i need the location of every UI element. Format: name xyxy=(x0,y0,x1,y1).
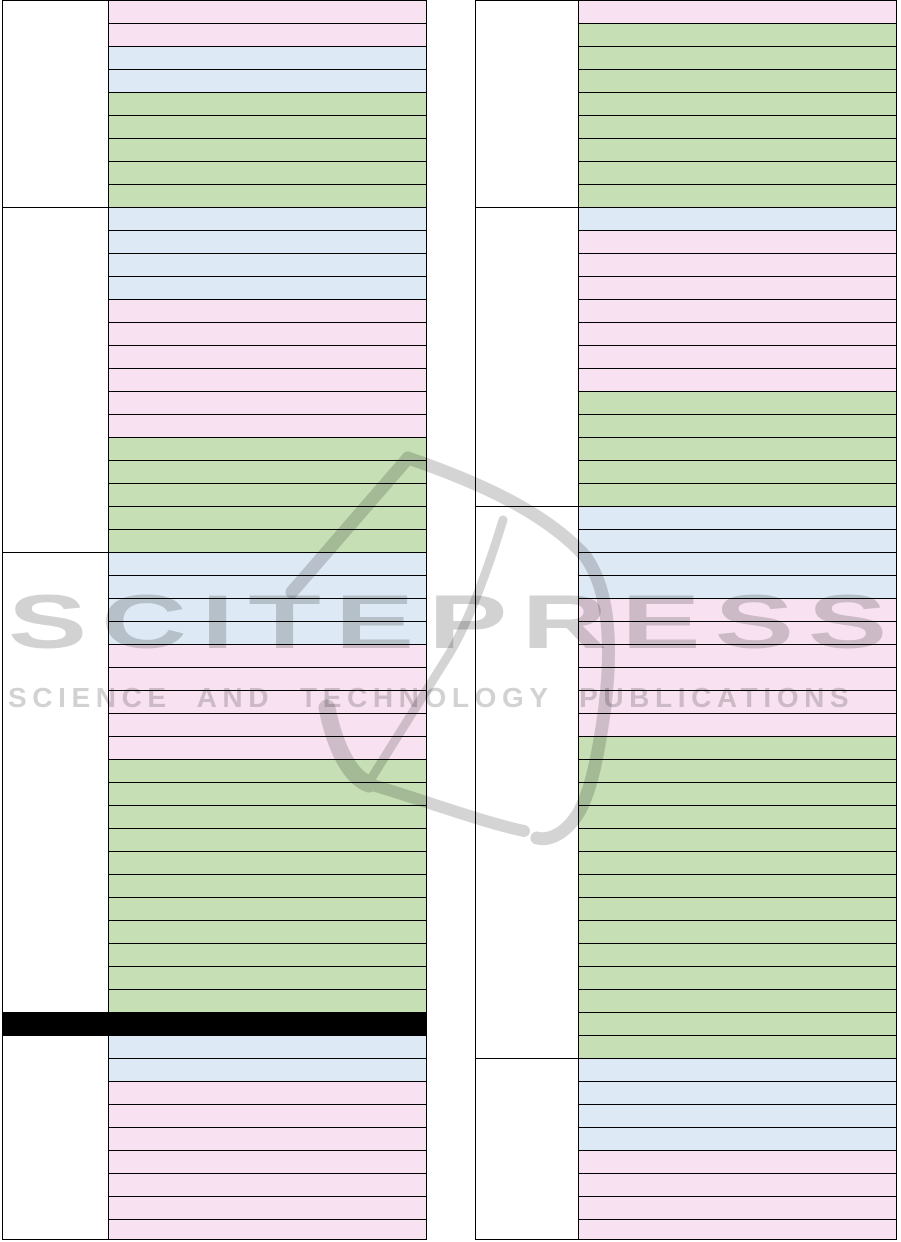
table-row-green xyxy=(579,162,896,185)
group-label-cell xyxy=(3,553,109,1013)
table-row-green xyxy=(579,760,896,783)
table-row-blue xyxy=(109,622,426,645)
table-row-pink xyxy=(579,691,896,714)
table-row-green xyxy=(109,875,426,898)
table-row-green xyxy=(579,484,896,507)
table-row-pink xyxy=(579,1220,896,1240)
group-rows xyxy=(579,1,896,208)
table-row-blue xyxy=(579,208,896,231)
table-row-pink xyxy=(109,737,426,760)
table-row-pink xyxy=(109,346,426,369)
table-row-pink xyxy=(579,599,896,622)
table-row-green xyxy=(109,967,426,990)
table-row-blue xyxy=(109,70,426,93)
table-row-pink xyxy=(109,415,426,438)
table-row-green xyxy=(579,1013,896,1036)
redaction-bar xyxy=(2,1013,427,1036)
table-row-green xyxy=(579,415,896,438)
table-row-green xyxy=(109,829,426,852)
table-row-blue xyxy=(109,599,426,622)
group-rows xyxy=(579,507,896,1059)
table-row-pink xyxy=(579,645,896,668)
row-group xyxy=(476,1,896,208)
table-row-green xyxy=(109,93,426,116)
group-rows xyxy=(109,208,426,553)
table-row-pink xyxy=(579,231,896,254)
table-row-pink xyxy=(579,369,896,392)
table-row-green xyxy=(109,806,426,829)
table-row-pink xyxy=(109,1151,426,1174)
row-group xyxy=(476,507,896,1059)
table-row-blue xyxy=(579,576,896,599)
table-row-green xyxy=(109,921,426,944)
table-row-blue xyxy=(109,1059,426,1082)
row-group xyxy=(3,1,426,208)
table-row-green xyxy=(109,116,426,139)
group-label-cell xyxy=(476,1,579,208)
table-row-blue xyxy=(109,576,426,599)
group-rows xyxy=(579,1059,896,1240)
table-row-blue xyxy=(579,1105,896,1128)
table-row-blue xyxy=(109,553,426,576)
row-group xyxy=(3,208,426,553)
table-row-pink xyxy=(109,668,426,691)
table-row-pink xyxy=(579,1,896,24)
table-row-green xyxy=(579,829,896,852)
group-label-cell xyxy=(3,1,109,208)
table-row-green xyxy=(109,484,426,507)
table-row-pink xyxy=(109,369,426,392)
table-row-pink xyxy=(109,691,426,714)
document-page: SCITEPRESS SCIENCE AND TECHNOLOGY PUBLIC… xyxy=(0,0,901,1242)
table-row-green xyxy=(579,47,896,70)
table-row-green xyxy=(579,852,896,875)
group-label-cell xyxy=(3,1036,109,1240)
group-rows xyxy=(579,208,896,507)
table-row-green xyxy=(579,783,896,806)
table-row-blue xyxy=(579,507,896,530)
table-row-green xyxy=(579,990,896,1013)
table-row-green xyxy=(579,438,896,461)
table-row-green xyxy=(579,806,896,829)
table-row-green xyxy=(109,507,426,530)
table-row-blue xyxy=(579,530,896,553)
group-label-cell xyxy=(476,208,579,507)
table-row-pink xyxy=(109,1174,426,1197)
table-row-blue xyxy=(579,553,896,576)
table-row-pink xyxy=(109,714,426,737)
table-row-blue xyxy=(109,47,426,70)
group-rows xyxy=(109,1036,426,1240)
table-row-green xyxy=(579,116,896,139)
table-row-green xyxy=(579,461,896,484)
table-row-green xyxy=(579,898,896,921)
table-row-green xyxy=(109,944,426,967)
table-row-blue xyxy=(579,1128,896,1151)
table-row-green xyxy=(579,392,896,415)
table-row-green xyxy=(579,1036,896,1059)
group-label-cell xyxy=(476,507,579,1059)
table-row-pink xyxy=(579,1197,896,1220)
table-row-pink xyxy=(579,277,896,300)
table-row-pink xyxy=(109,323,426,346)
row-group xyxy=(3,1036,426,1240)
group-label-cell xyxy=(476,1059,579,1240)
table-row-green xyxy=(109,438,426,461)
table-row-green xyxy=(579,185,896,208)
table-row-pink xyxy=(109,1220,426,1240)
table-row-blue xyxy=(109,231,426,254)
table-row-green xyxy=(579,70,896,93)
table-row-pink xyxy=(109,1105,426,1128)
table-row-green xyxy=(579,967,896,990)
table-row-pink xyxy=(109,1082,426,1105)
table-row-blue xyxy=(579,1059,896,1082)
table-row-pink xyxy=(579,254,896,277)
table-row-blue xyxy=(109,277,426,300)
table-row-pink xyxy=(109,24,426,47)
group-label-cell xyxy=(3,208,109,553)
row-group xyxy=(476,208,896,507)
table-right xyxy=(475,0,897,1240)
table-row-green xyxy=(109,530,426,553)
table-row-pink xyxy=(109,392,426,415)
row-group xyxy=(3,553,426,1013)
table-row-pink xyxy=(579,1151,896,1174)
table-row-pink xyxy=(579,714,896,737)
table-row-blue xyxy=(109,254,426,277)
table-row-blue xyxy=(109,1036,426,1059)
table-row-green xyxy=(109,898,426,921)
table-row-green xyxy=(109,185,426,208)
table-row-pink xyxy=(579,668,896,691)
table-row-green xyxy=(579,24,896,47)
table-row-pink xyxy=(579,1174,896,1197)
table-row-green xyxy=(109,990,426,1013)
table-row-blue xyxy=(109,208,426,231)
row-group xyxy=(476,1059,896,1240)
table-row-green xyxy=(109,783,426,806)
table-row-pink xyxy=(109,300,426,323)
table-row-blue xyxy=(579,1082,896,1105)
table-row-pink xyxy=(109,1128,426,1151)
table-row-pink xyxy=(109,1,426,24)
table-row-pink xyxy=(579,622,896,645)
table-row-green xyxy=(109,760,426,783)
table-row-green xyxy=(109,162,426,185)
table-row-pink xyxy=(579,346,896,369)
table-row-green xyxy=(109,139,426,162)
table-row-pink xyxy=(109,645,426,668)
table-row-green xyxy=(579,737,896,760)
table-row-pink xyxy=(109,1197,426,1220)
table-row-green xyxy=(109,461,426,484)
group-rows xyxy=(109,553,426,1013)
table-row-pink xyxy=(579,323,896,346)
group-rows xyxy=(109,1,426,208)
table-row-green xyxy=(579,944,896,967)
table-row-green xyxy=(579,93,896,116)
table-row-green xyxy=(579,921,896,944)
table-row-green xyxy=(109,852,426,875)
table-row-green xyxy=(579,875,896,898)
table-left xyxy=(2,0,427,1240)
table-row-pink xyxy=(579,300,896,323)
table-row-green xyxy=(579,139,896,162)
